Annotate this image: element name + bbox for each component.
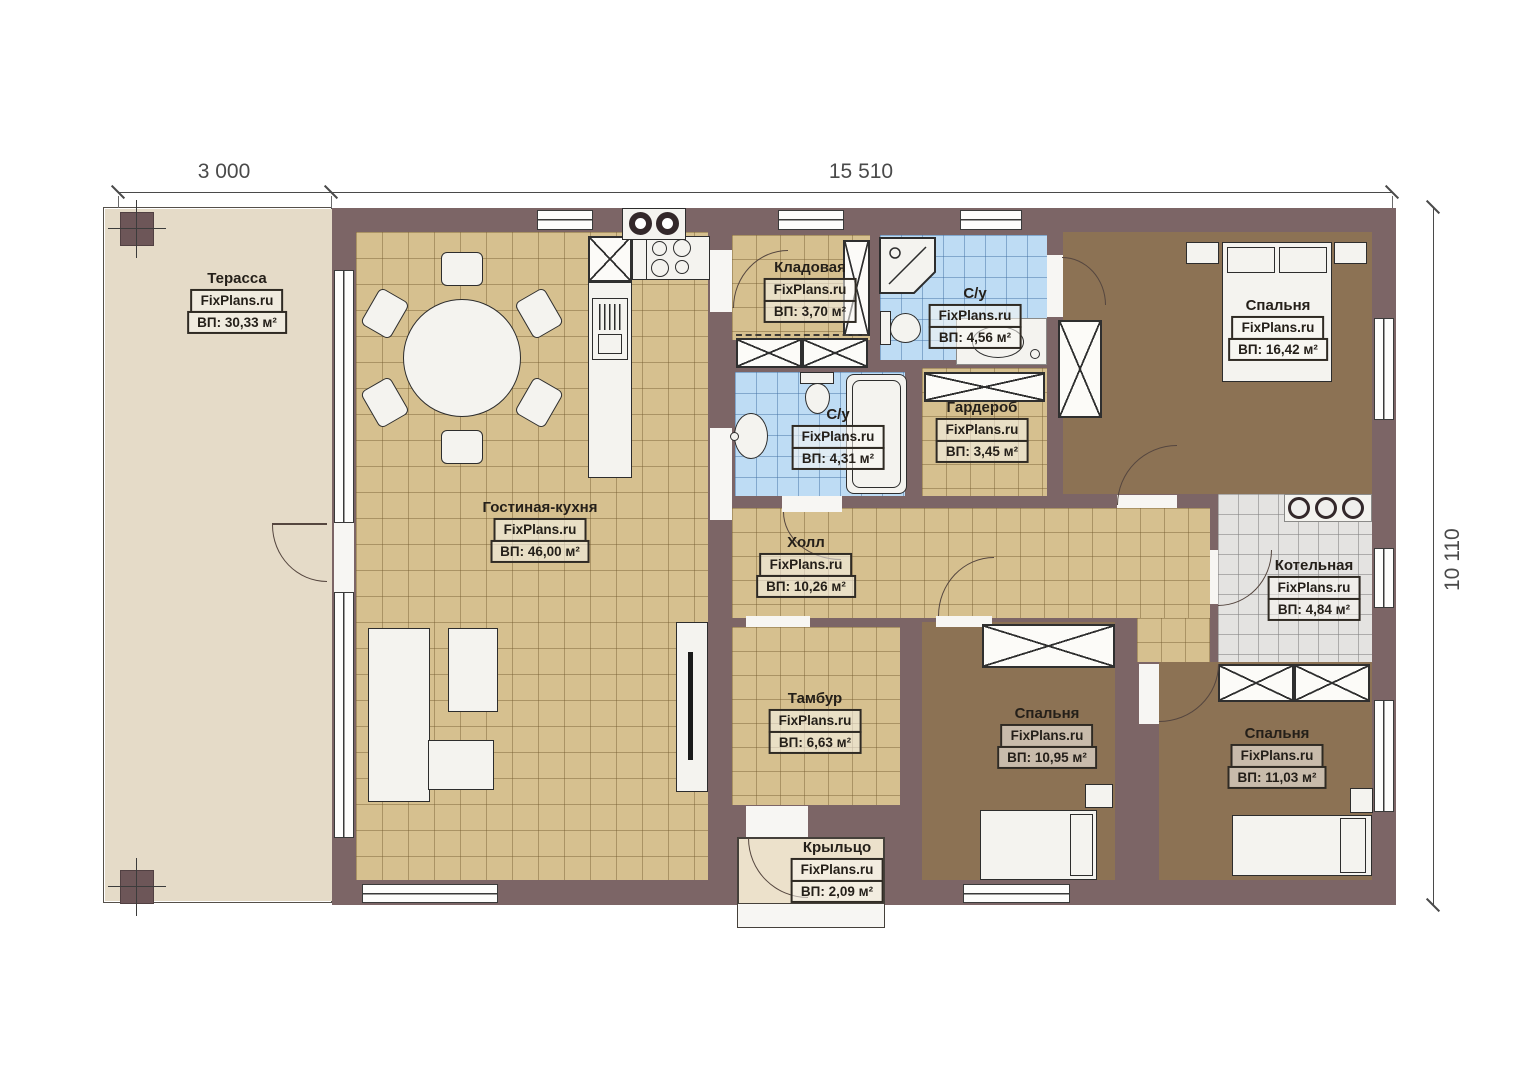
- shower-cabin: [879, 237, 936, 294]
- sink: [734, 413, 768, 459]
- dining-area: [403, 299, 521, 417]
- room-area: ВП: 10,26 м²: [756, 575, 856, 599]
- window: [960, 210, 1022, 230]
- brand-watermark: FixPlans.ru: [1231, 744, 1324, 768]
- nightstand: [1186, 242, 1219, 264]
- nightstand: [1334, 242, 1367, 264]
- hood-vent: [656, 212, 679, 235]
- door-opening-vestibule: [746, 616, 810, 627]
- room-area: ВП: 4,84 м²: [1268, 598, 1360, 622]
- room-name: С/у: [963, 285, 986, 302]
- window: [963, 884, 1070, 903]
- brand-watermark: FixPlans.ru: [1001, 724, 1094, 748]
- closet: [736, 338, 802, 368]
- window: [537, 210, 593, 230]
- room-name: Котельная: [1275, 557, 1354, 574]
- chair: [441, 252, 483, 286]
- closet: [982, 624, 1115, 668]
- room-area: ВП: 30,33 м²: [187, 311, 287, 335]
- room-label-terrace: Терасса FixPlans.ru ВП: 30,33 м²: [187, 270, 287, 334]
- nightstand: [1350, 788, 1373, 813]
- kitchen-cabinet: [588, 236, 632, 282]
- brand-watermark: FixPlans.ru: [929, 304, 1022, 328]
- fridge-compartment: [598, 334, 622, 354]
- door-opening-entrance: [746, 806, 808, 838]
- dimension-line-top: [118, 192, 1392, 193]
- column-axis: [108, 886, 166, 887]
- stove-burner: [651, 259, 669, 277]
- window: [778, 210, 844, 230]
- room-label-bathroom-mid: С/у FixPlans.ru ВП: 4,31 м²: [792, 406, 885, 470]
- pillow: [1279, 247, 1327, 273]
- sofa: [368, 628, 430, 802]
- room-label-boiler: Котельная FixPlans.ru ВП: 4,84 м²: [1268, 557, 1361, 621]
- column-axis: [108, 228, 166, 229]
- room-name: Гардероб: [947, 399, 1018, 416]
- fridge-vent: [599, 304, 621, 330]
- pillow: [1340, 818, 1366, 873]
- door-opening-terrace: [334, 523, 354, 592]
- closet: [1294, 664, 1370, 702]
- room-label-bedroom-right: Спальня FixPlans.ru ВП: 11,03 м²: [1228, 725, 1327, 789]
- window: [1374, 700, 1394, 812]
- boiler-unit: [1342, 497, 1364, 519]
- dim-label-house-height: 10 110: [1441, 500, 1465, 620]
- door-opening-boiler: [1210, 550, 1218, 604]
- dim-extension-line: [331, 196, 332, 208]
- faucet: [730, 432, 739, 441]
- door-opening-bathroom-top: [1047, 255, 1063, 317]
- room-label-bedroom-mid: Спальня FixPlans.ru ВП: 10,95 м²: [997, 705, 1097, 769]
- dim-label-house-width: 15 510: [791, 160, 931, 184]
- closet: [924, 372, 1045, 402]
- storage-dashed-boundary: [736, 334, 868, 336]
- room-area: ВП: 10,95 м²: [997, 746, 1097, 770]
- brand-watermark: FixPlans.ru: [764, 278, 857, 302]
- boiler-unit: [1288, 497, 1310, 519]
- dim-label-terrace-width: 3 000: [164, 160, 284, 184]
- window: [1374, 318, 1394, 420]
- room-name: Крыльцо: [803, 839, 871, 856]
- column-axis: [136, 200, 137, 258]
- room-label-living-kitchen: Гостиная-кухня FixPlans.ru ВП: 46,00 м²: [483, 499, 598, 563]
- door-opening-bathroom-mid: [782, 496, 842, 512]
- toilet-bowl: [890, 313, 921, 343]
- tv: [688, 652, 693, 760]
- window: [334, 270, 354, 523]
- brand-watermark: FixPlans.ru: [1232, 316, 1325, 340]
- terrace-column: [120, 212, 154, 246]
- room-name: Спальня: [1246, 297, 1311, 314]
- dim-extension-line: [1392, 196, 1393, 208]
- room-area: ВП: 3,45 м²: [936, 440, 1028, 464]
- floor-plan: 3 000 15 510 10 110: [0, 0, 1528, 1080]
- brand-watermark: FixPlans.ru: [936, 418, 1029, 442]
- room-area: ВП: 16,42 м²: [1228, 338, 1328, 362]
- room-area: ВП: 46,00 м²: [490, 540, 590, 564]
- dining-table: [403, 299, 521, 417]
- room-label-bedroom-master: Спальня FixPlans.ru ВП: 16,42 м²: [1228, 297, 1328, 361]
- brand-watermark: FixPlans.ru: [792, 425, 885, 449]
- room-name: Терасса: [207, 270, 266, 287]
- closet: [1058, 320, 1102, 418]
- sofa-chaise: [428, 740, 494, 790]
- room-area: ВП: 6,63 м²: [769, 731, 861, 755]
- brand-watermark: FixPlans.ru: [760, 553, 853, 577]
- coffee-table: [448, 628, 498, 712]
- opening-living-hall: [710, 428, 732, 520]
- room-label-porch: Крыльцо FixPlans.ru ВП: 2,09 м²: [791, 839, 884, 903]
- brand-watermark: FixPlans.ru: [191, 289, 284, 313]
- brand-watermark: FixPlans.ru: [769, 709, 862, 733]
- hood-vent: [629, 212, 652, 235]
- pillow: [1070, 814, 1093, 876]
- column-axis: [136, 858, 137, 916]
- window: [334, 592, 354, 838]
- boiler-unit: [1315, 497, 1337, 519]
- door-opening-bedroom-right: [1139, 664, 1159, 724]
- terrace-column: [120, 870, 154, 904]
- room-area: ВП: 11,03 м²: [1228, 766, 1327, 790]
- room-name: Спальня: [1015, 705, 1080, 722]
- stove-burner: [673, 239, 691, 257]
- brand-watermark: FixPlans.ru: [1268, 576, 1361, 600]
- room-floor-hall-passage: [1137, 618, 1210, 662]
- stove-burner: [675, 260, 689, 274]
- faucet: [1030, 349, 1040, 359]
- room-name: Спальня: [1245, 725, 1310, 742]
- closet: [1218, 664, 1294, 702]
- room-name: Тамбур: [788, 690, 842, 707]
- room-name: Гостиная-кухня: [483, 499, 598, 516]
- closet: [802, 338, 868, 368]
- room-label-hall: Холл FixPlans.ru ВП: 10,26 м²: [756, 534, 856, 598]
- room-area: ВП: 3,70 м²: [764, 300, 856, 324]
- room-label-wardrobe: Гардероб FixPlans.ru ВП: 3,45 м²: [936, 399, 1029, 463]
- window: [1374, 548, 1394, 608]
- room-area: ВП: 4,56 м²: [929, 326, 1021, 350]
- brand-watermark: FixPlans.ru: [494, 518, 587, 542]
- porch-step: [737, 903, 885, 928]
- room-name: С/у: [826, 406, 849, 423]
- chair: [441, 430, 483, 464]
- room-label-vestibule: Тамбур FixPlans.ru ВП: 6,63 м²: [769, 690, 862, 754]
- stove-burner: [652, 241, 667, 256]
- door-opening-storage: [710, 250, 732, 312]
- room-name: Холл: [787, 534, 825, 551]
- room-name: Кладовая: [774, 259, 846, 276]
- window: [362, 884, 498, 903]
- dimension-line-right: [1433, 207, 1434, 905]
- room-label-bathroom-top: С/у FixPlans.ru ВП: 4,56 м²: [929, 285, 1022, 349]
- pillow: [1227, 247, 1275, 273]
- brand-watermark: FixPlans.ru: [791, 858, 884, 882]
- room-area: ВП: 4,31 м²: [792, 447, 884, 471]
- room-area: ВП: 2,09 м²: [791, 880, 883, 904]
- room-label-storage: Кладовая FixPlans.ru ВП: 3,70 м²: [764, 259, 857, 323]
- nightstand: [1085, 784, 1113, 808]
- dim-extension-line: [118, 196, 119, 208]
